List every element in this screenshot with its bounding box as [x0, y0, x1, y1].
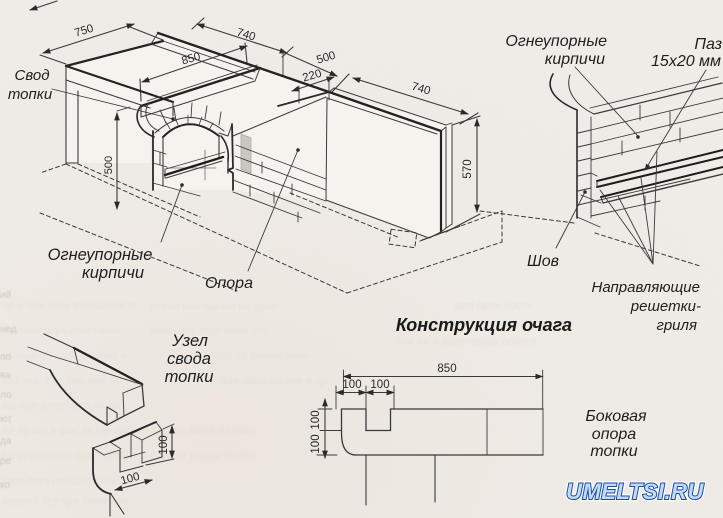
svg-text:Паз: Паз	[694, 36, 722, 53]
svg-text:Огнеупорные: Огнеупорные	[505, 33, 607, 50]
svg-text:решетки-: решетки-	[630, 298, 701, 315]
svg-text:вы пол жите кирп чи на: вы пол жите кирп чи на	[2, 400, 122, 412]
svg-text:кирпичи: кирпичи	[82, 264, 144, 282]
svg-text:ва: ва	[0, 370, 11, 381]
svg-text:ий: ий	[0, 290, 11, 301]
svg-text:на вашем уч стке немн: на вашем уч стке немн	[2, 325, 119, 337]
svg-text:100: 100	[158, 435, 170, 454]
svg-text:немн ого терп ения что: немн ого терп ения что	[150, 325, 268, 337]
svg-text:бли же к делу понад обятся: бли же к делу понад обятся	[395, 336, 536, 348]
svg-text:да: да	[0, 436, 12, 447]
svg-text:Свод: Свод	[15, 67, 50, 84]
svg-text:Направляющие: Направляющие	[592, 279, 700, 296]
svg-text:100: 100	[370, 379, 389, 391]
svg-text:ют: ют	[0, 414, 12, 425]
svg-text:топки: топки	[165, 368, 214, 386]
svg-text:ра те его в мес те где хол: ра те его в мес те где хол	[2, 425, 132, 437]
svg-text:15х20 мм: 15х20 мм	[651, 53, 721, 70]
svg-text:опора: опора	[592, 426, 637, 443]
svg-text:Шов: Шов	[527, 253, 559, 270]
svg-text:че и тем каче тановится м: че и тем каче тановится м	[2, 300, 136, 312]
svg-text:Конструкция очага: Конструкция очага	[396, 315, 572, 335]
svg-text:для проч ности: для проч ности	[455, 300, 532, 312]
svg-text:Боковая: Боковая	[585, 408, 647, 425]
svg-text:ло: ло	[0, 390, 12, 401]
svg-text:для шаш лы ков и др: для шаш лы ков и др	[220, 375, 328, 387]
svg-text:Огнеупорные: Огнеупорные	[48, 246, 153, 264]
svg-text:Опора: Опора	[205, 275, 253, 292]
svg-text:кро тва. Хоз йва жел но: кро тва. Хоз йва жел но	[2, 375, 122, 387]
svg-text:по: по	[0, 352, 11, 363]
svg-text:топки: топки	[8, 86, 53, 103]
svg-text:570: 570	[462, 159, 474, 178]
svg-text:500: 500	[103, 156, 115, 174]
svg-text:по верхн ость буд т ровн: по верхн ость буд т ровн	[2, 450, 128, 462]
svg-text:ко: ко	[0, 480, 10, 491]
svg-text:Узел: Узел	[171, 332, 208, 350]
svg-text:топки: топки	[590, 443, 637, 460]
svg-text:буд то шелая печь: буд то шелая печь	[215, 350, 309, 362]
svg-text:UMELTSI.RU: UMELTSI.RU	[566, 479, 704, 504]
svg-text:конс трук ция долж на б: конс трук ция долж на б	[2, 475, 124, 487]
svg-text:жарить мясо на реш: жарить мясо на реш	[150, 425, 254, 437]
svg-text:нед: нед	[0, 324, 17, 335]
svg-text:100: 100	[310, 410, 322, 429]
svg-text:ре: ре	[0, 456, 12, 467]
svg-text:остал ное время на даче: остал ное время на даче	[150, 301, 278, 313]
svg-text:850: 850	[437, 363, 456, 375]
svg-text:свода: свода	[167, 350, 211, 368]
svg-text:100: 100	[342, 379, 361, 391]
svg-text:кирпичи: кирпичи	[545, 51, 605, 68]
svg-text:гриля: гриля	[656, 317, 697, 334]
svg-text:100: 100	[310, 434, 322, 453]
